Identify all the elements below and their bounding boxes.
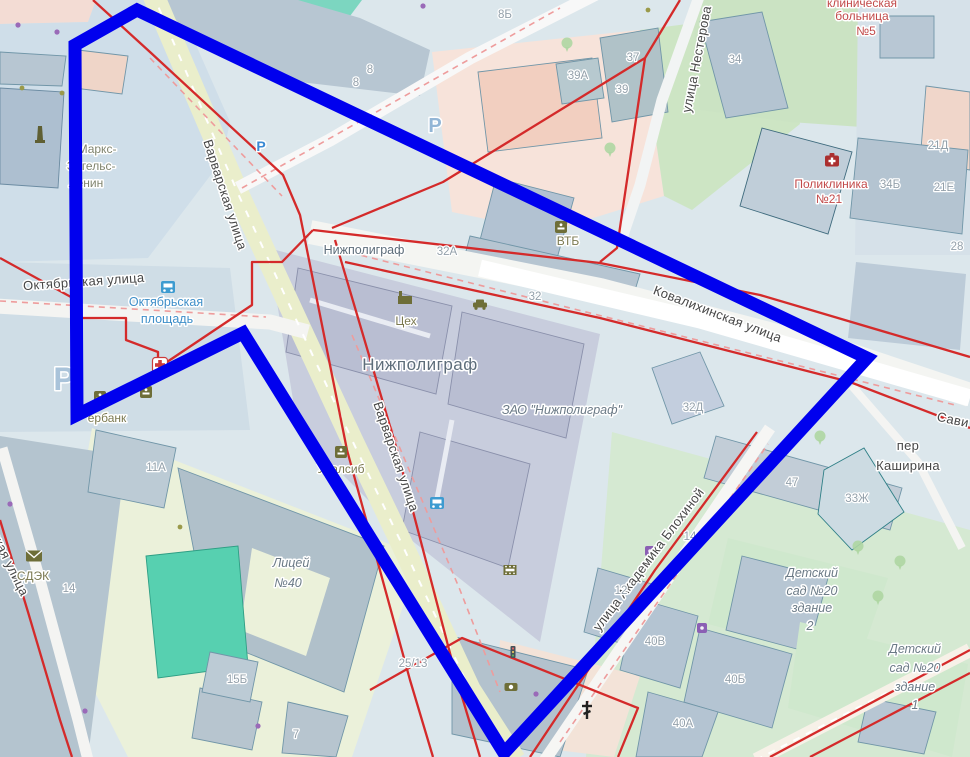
label-no21: №21 xyxy=(816,192,843,206)
num-34: 34 xyxy=(729,54,742,66)
map-block xyxy=(0,0,96,24)
label-poliklinika: Поликлиника xyxy=(794,177,868,191)
label-oktyabrskaya-ploshchad-1: Октябрьская xyxy=(129,295,203,309)
svg-text:P: P xyxy=(428,115,441,137)
traffic-light-icon xyxy=(511,646,516,658)
label-detsad1-3: здание xyxy=(894,680,935,694)
label-zao-nizhpoligraf: ЗАО "Нижполиграф" xyxy=(502,403,623,417)
num-11a: 11А xyxy=(146,462,166,474)
map-block xyxy=(848,262,966,350)
label-detsad1-1: Детский xyxy=(887,642,941,656)
num-40b: 40Б xyxy=(725,674,745,686)
num-33zh: 33Ж xyxy=(845,493,869,505)
post-cdek-icon xyxy=(26,551,42,562)
camera-icon xyxy=(505,683,518,691)
label-detsad2-4: 2 xyxy=(806,619,814,633)
bus-stop-icon xyxy=(161,281,175,293)
shop-purple-icon xyxy=(697,623,707,633)
label-detsad2-1: Детский xyxy=(784,566,838,580)
bank-uralsib-icon xyxy=(335,446,347,458)
label-bolnitsa: больница xyxy=(835,9,889,23)
label-licey-no40: №40 xyxy=(274,576,301,590)
num-47: 47 xyxy=(786,477,799,489)
num-39: 39 xyxy=(616,84,629,96)
map-canvas[interactable]: PPPВарварская улицаВарварская улицаОктяб… xyxy=(0,0,970,757)
dot-khaki-icon xyxy=(646,8,651,13)
label-detsad2-2: сад №20 xyxy=(786,584,837,598)
label-tseh: Цех xyxy=(395,314,416,328)
num-12: 12 xyxy=(615,585,628,597)
num-8b: 8Б xyxy=(498,9,512,21)
dot-purple-icon xyxy=(7,501,12,506)
label-nizhpoligraf-small: Нижполиграф xyxy=(324,243,405,257)
num-34b: 34Б xyxy=(880,179,900,191)
map-block xyxy=(0,88,64,188)
num-15b: 15Б xyxy=(227,674,247,686)
num-32a: 32А xyxy=(437,246,458,258)
num-40v: 40В xyxy=(645,636,666,648)
dot-purple-icon xyxy=(54,29,59,34)
dot-purple-icon xyxy=(82,708,87,713)
num-25-13: 25/13 xyxy=(399,658,428,670)
num-8-upper: 8 xyxy=(367,64,373,76)
num-40a: 40А xyxy=(673,718,694,730)
bus-stop-icon xyxy=(430,497,444,509)
label-marks: Маркс- xyxy=(78,142,117,156)
svg-text:P: P xyxy=(256,138,265,154)
bank-vtb-icon xyxy=(555,221,567,233)
dot-purple-icon xyxy=(533,691,538,696)
num-7: 7 xyxy=(293,729,299,741)
num-21e: 21Е xyxy=(934,182,955,194)
label-vtb: ВТБ xyxy=(557,234,580,248)
label-no5: №5 xyxy=(856,24,876,38)
osm-map[interactable]: PPPВарварская улицаВарварская улицаОктяб… xyxy=(0,0,970,757)
num-39a: 39А xyxy=(568,70,589,82)
num-21d: 21Д xyxy=(928,140,949,152)
label-detsad2-3: здание xyxy=(791,601,832,615)
street-per: пер xyxy=(897,438,919,453)
num-28: 28 xyxy=(951,241,964,253)
label-detsad1-2: сад №20 xyxy=(889,661,940,675)
label-sdek: СДЭК xyxy=(17,569,49,583)
dot-purple-icon xyxy=(15,22,20,27)
num-8-lower: 8 xyxy=(353,77,359,89)
dot-khaki-icon xyxy=(60,91,65,96)
parking-small-icon: P xyxy=(256,138,265,154)
num-37: 37 xyxy=(627,52,640,64)
dot-khaki-icon xyxy=(178,525,183,530)
street-kashirina: Каширина xyxy=(876,458,940,473)
label-licey: Лицей xyxy=(272,556,310,570)
label-nizhpoligraf-big: Нижполиграф xyxy=(362,355,477,374)
num-14-left: 14 xyxy=(63,583,76,595)
num-32: 32 xyxy=(529,291,542,303)
map-block xyxy=(74,50,128,94)
cinema-icon xyxy=(504,565,517,575)
num-32d: 32Д xyxy=(683,402,704,414)
parking-icon: P xyxy=(428,115,441,137)
dot-purple-icon xyxy=(255,723,260,728)
dot-purple-icon xyxy=(420,3,425,8)
label-oktyabrskaya-ploshchad-2: площадь xyxy=(141,312,193,326)
map-block xyxy=(0,52,66,86)
label-detsad1-4: 1 xyxy=(912,698,919,712)
dot-khaki-icon xyxy=(20,86,25,91)
